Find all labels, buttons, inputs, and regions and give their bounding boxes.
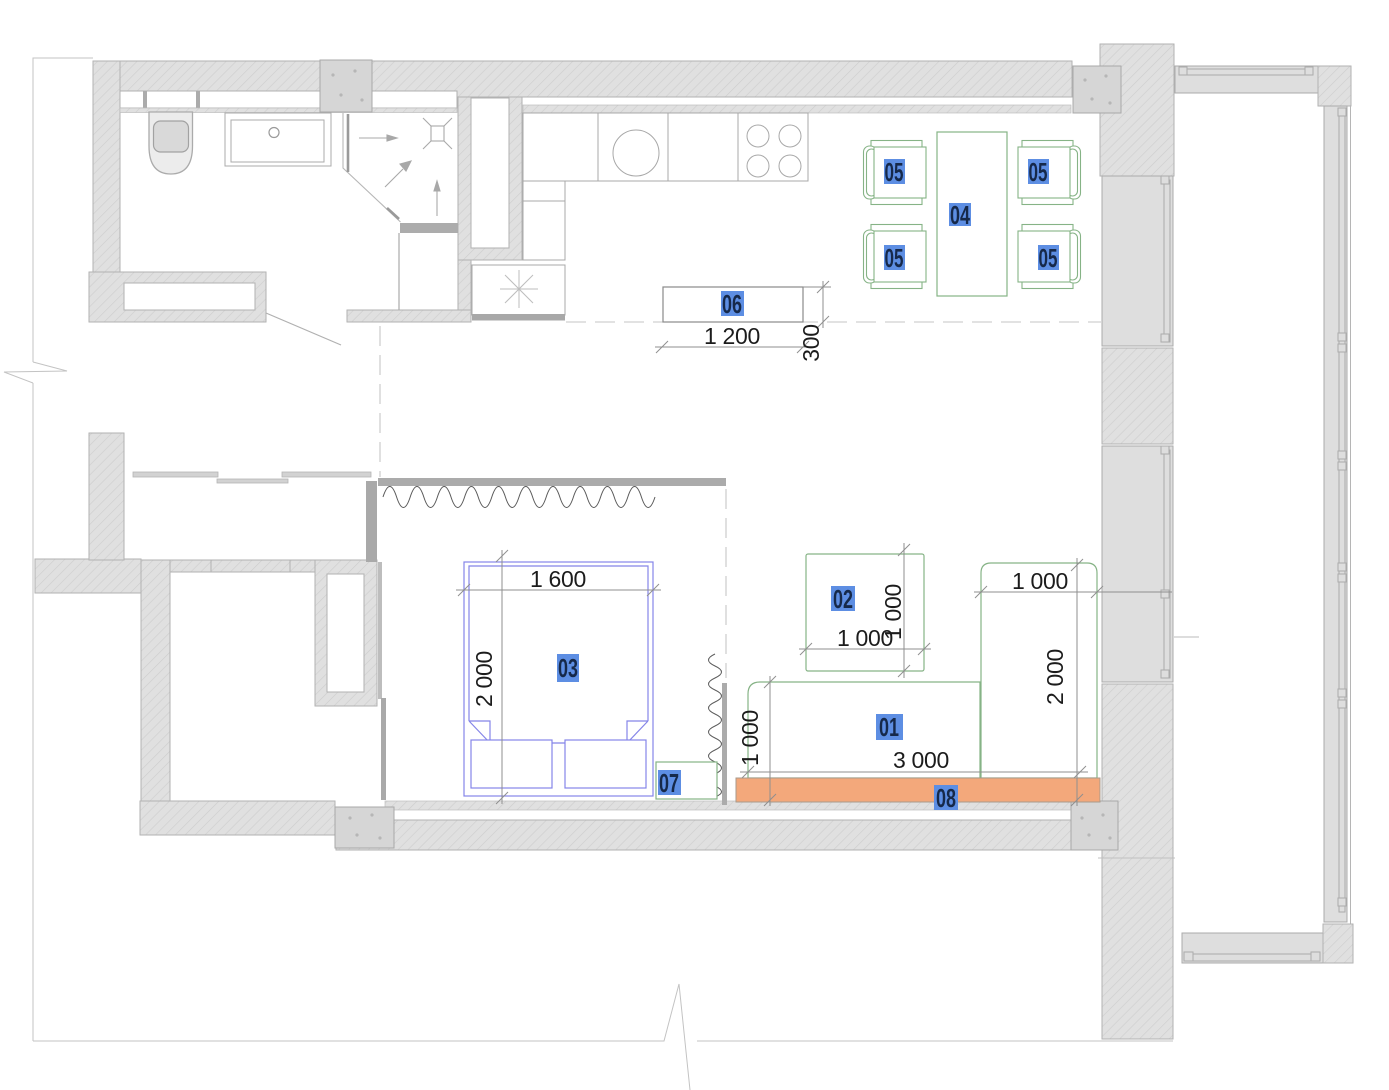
svg-text:1 000: 1 000 — [880, 584, 906, 640]
svg-text:05: 05 — [885, 157, 904, 187]
svg-text:05: 05 — [1039, 243, 1058, 273]
svg-text:1 600: 1 600 — [530, 566, 586, 592]
svg-text:1 000: 1 000 — [737, 710, 763, 766]
svg-text:08: 08 — [936, 783, 956, 813]
svg-text:3 000: 3 000 — [893, 747, 949, 773]
svg-text:2 000: 2 000 — [1042, 649, 1068, 705]
svg-text:07: 07 — [659, 768, 679, 798]
svg-text:04: 04 — [950, 200, 970, 230]
svg-text:01: 01 — [879, 712, 899, 742]
svg-text:06: 06 — [722, 289, 742, 319]
svg-text:300: 300 — [798, 324, 824, 361]
svg-text:03: 03 — [558, 653, 578, 683]
svg-text:2 000: 2 000 — [471, 651, 497, 707]
svg-text:05: 05 — [1029, 157, 1048, 187]
svg-text:02: 02 — [833, 584, 853, 614]
svg-text:1 200: 1 200 — [704, 323, 760, 349]
svg-text:05: 05 — [885, 243, 904, 273]
svg-text:1 000: 1 000 — [1012, 568, 1068, 594]
